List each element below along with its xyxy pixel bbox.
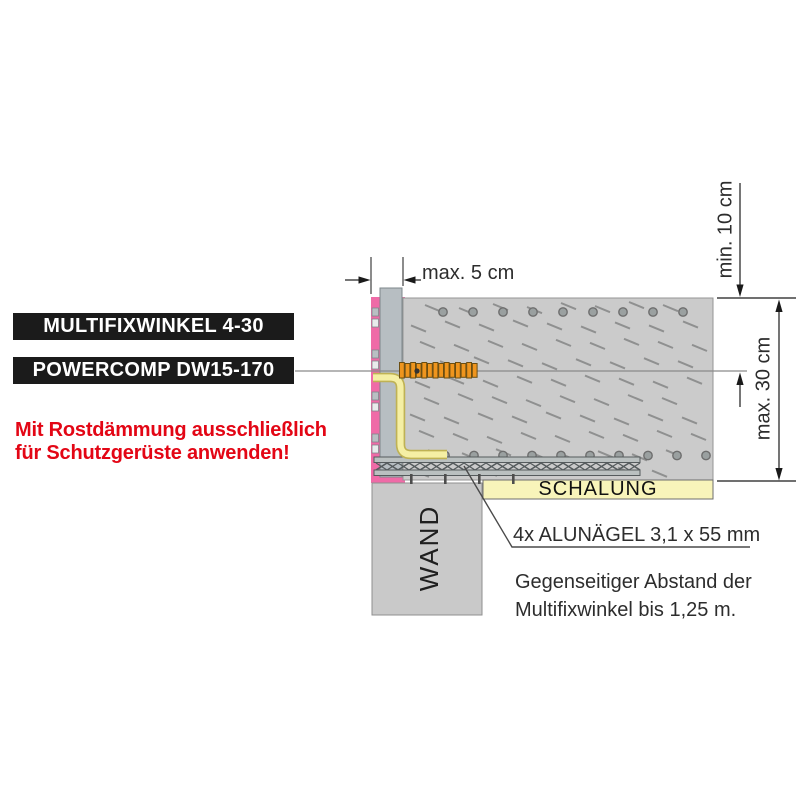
spacing-note-line-2: Multifixwinkel bis 1,25 m. — [515, 596, 752, 624]
arrowhead-up — [736, 373, 743, 386]
spacing-note-line-1: Gegenseitiger Abstand der — [515, 568, 752, 596]
dim-label-max-30cm: max. 30 cm — [753, 324, 776, 454]
arrowhead-left — [404, 276, 416, 283]
construction-detail-drawing — [0, 0, 800, 800]
spacing-note: Gegenseitiger Abstand der Multifixwinkel… — [515, 568, 752, 624]
product-label-multifixwinkel-text: MULTIFIXWINKEL 4-30 — [43, 315, 264, 338]
product-label-powercomp-text: POWERCOMP DW15-170 — [33, 359, 275, 382]
product-label-multifixwinkel: MULTIFIXWINKEL 4-30 — [13, 313, 294, 340]
warning-note: Mit Rostdämmung ausschließlich für Schut… — [15, 419, 327, 465]
warning-line-1: Mit Rostdämmung ausschließlich — [15, 419, 327, 442]
product-label-powercomp: POWERCOMP DW15-170 — [13, 357, 294, 384]
rebar-row-top — [439, 308, 687, 316]
lattice-girder-bottom-chord — [374, 470, 640, 476]
scaffolding-anchor-detail-page: MULTIFIXWINKEL 4-30 POWERCOMP DW15-170 M… — [0, 0, 800, 800]
threaded-tie — [400, 363, 478, 379]
wall-label: WAND — [414, 478, 446, 618]
leader-dot — [414, 368, 419, 373]
tie-level-arrow — [736, 373, 743, 408]
dim-label-min-10cm: min. 10 cm — [715, 170, 738, 290]
dim-label-max-5cm: max. 5 cm — [422, 262, 514, 285]
arrowhead-down — [775, 468, 782, 481]
arrowhead-up — [775, 300, 782, 313]
formwork-label: SCHALUNG — [483, 480, 713, 499]
alunagel-label: 4x ALUNÄGEL 3,1 x 55 mm — [513, 524, 760, 547]
arrowhead-right — [359, 276, 371, 283]
warning-line-2: für Schutzgerüste anwenden! — [15, 442, 327, 465]
